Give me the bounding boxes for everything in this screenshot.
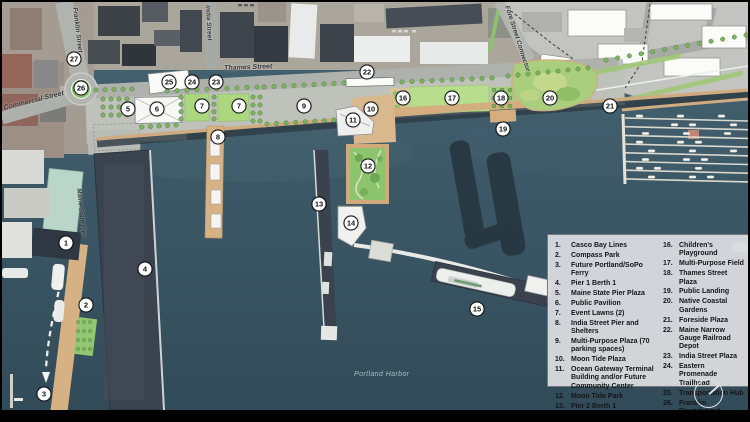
tree-icon [117,97,121,101]
legend-item: 7.Event Lawns (2) [555,310,661,318]
tree-icon [175,88,179,92]
boat-icon [648,150,655,153]
tree-icon [556,69,560,73]
casco-bay-lines-building [31,228,82,261]
legend-item-text: Moon Tide Plaza [571,356,661,364]
legend-item: 1.Casco Bay Lines [555,242,661,250]
legend-item-number: 1. [555,242,571,250]
tree-icon [332,81,336,85]
tree-icon [212,117,216,121]
legend-item-number: 16. [663,242,679,259]
boat-icon [701,158,708,161]
legend-item-text: Foreside Plaza [679,317,744,325]
tree-icon [101,113,105,117]
tree-icon [685,43,689,47]
legend-item-text: Event Lawns (2) [571,310,661,318]
tree-icon [506,74,510,78]
tree-icon [508,104,512,108]
map-marker-5: 5 [121,102,136,117]
legend-item-text: Multi-Purpose Field [679,260,744,268]
tree-icon [430,78,434,82]
legend-item: 19.Public Landing [663,288,744,296]
legend-item: 4.Pier 1 Berth 1 [555,280,661,288]
legend-item-text: India Street Plaza [679,353,744,361]
tree-icon [82,329,85,332]
legend-item-number: 2. [555,252,571,260]
map-marker-17: 17 [445,91,460,106]
map-marker-6: 6 [150,102,165,117]
legend-item: 2.Compass Park [555,252,661,260]
tree-icon [604,58,608,62]
legend-item: 3.Future Portland/SoPo Ferry [555,262,661,279]
ferry-boat [53,300,65,323]
legend-column-2: 16.Children's Playground17.Multi-Purpose… [663,242,744,381]
tree-icon [732,35,736,39]
legend-column-1: 1.Casco Bay Lines2.Compass Park3.Future … [555,242,661,381]
tree-icon [76,347,79,350]
tree-icon [480,76,484,80]
legend-item-text: Compass Park [571,252,661,260]
tree-icon [322,82,326,86]
legend-item-text: Maine State Pier Plaza [571,290,661,298]
legend-item: 6.Public Pavilion [555,300,661,308]
tree-icon [470,77,474,81]
map-marker-21: 21 [603,99,618,114]
tree-icon [82,338,85,341]
tree-icon [639,52,643,56]
legend: 1.Casco Bay Lines2.Compass Park3.Future … [547,234,748,387]
tree-icon [284,121,288,125]
tree-icon [76,329,79,332]
tree-icon [615,56,619,60]
tree-icon [508,96,512,100]
tree-icon [88,320,91,323]
tree-icon [174,123,178,127]
tree-icon [101,97,105,101]
tree-icon [627,54,631,58]
map-marker-16: 16 [396,91,411,106]
map-marker-1: 1 [59,236,74,251]
boat-icon [636,167,643,170]
tree-icon [157,124,161,128]
legend-item-text: Pier 2 Berth 1 [571,403,661,410]
legend-item: 16.Children's Playground [663,242,744,259]
map-marker-2: 2 [79,298,94,313]
tree-icon [103,88,107,92]
tree-icon [179,95,183,99]
map-marker-4: 4 [138,262,153,277]
tree-icon [674,45,678,49]
tree-icon [586,66,590,70]
waterfront-plan-map: Thames StreetCommercial StreetFranklin S… [2,2,748,410]
tree-icon [130,87,134,91]
tree-icon [179,109,183,113]
boat-icon [718,115,725,118]
tree-icon [272,84,276,88]
legend-item: 23.India Street Plaza [663,353,744,361]
legend-item-number: 9. [555,338,571,355]
boat-icon [683,158,690,161]
tree-icon [165,123,169,127]
tree-icon [212,102,216,106]
tree-icon [251,95,255,99]
tree-icon [235,86,239,90]
tree-icon [251,111,255,115]
tree-icon [212,109,216,113]
tree-icon [179,102,183,106]
map-marker-11: 11 [346,113,361,128]
legend-item-number: 23. [663,353,679,361]
boat-icon [689,176,696,179]
boat-icon [677,115,684,118]
map-marker-27: 27 [67,52,82,67]
map-marker-19: 19 [496,122,511,137]
legend-item-number: 24. [663,363,679,388]
legend-item-number: 21. [663,317,679,325]
legend-item-text: Moon Tide Park [571,393,661,401]
map-marker-12: 12 [361,159,376,174]
tree-icon [255,85,259,89]
legend-item: 18.Thames Street Plaza [663,270,744,287]
legend-item-number: 12. [555,393,571,401]
tree-icon [322,118,326,122]
tree-icon [212,95,216,99]
tree-icon [179,117,183,121]
legend-item-number: 26. [663,400,679,410]
map-marker-13: 13 [312,197,327,212]
tree-icon [576,67,580,71]
boat-icon [654,167,661,170]
tree-icon [492,104,496,108]
street-label-harbor: Portland Harbor [354,371,409,378]
map-marker-8: 8 [211,130,226,145]
tree-icon [82,320,85,323]
map-marker-7: 7 [195,99,210,114]
legend-item: 5.Maine State Pier Plaza [555,290,661,298]
tree-icon [88,329,91,332]
tree-icon [709,39,713,43]
map-marker-26: 26 [74,81,89,96]
legend-item: 17.Multi-Purpose Field [663,260,744,268]
legend-item-number: 19. [663,288,679,296]
boat-icon [677,141,684,144]
tree-icon [94,88,98,92]
tree-icon [251,103,255,107]
tree-icon [109,113,113,117]
tree-icon [490,76,494,80]
boat-icon [689,150,696,153]
legend-item-number: 11. [555,366,571,391]
map-marker-7: 7 [232,99,247,114]
tree-icon [109,105,113,109]
north-arrow-needle [708,384,719,394]
legend-item-text: Multi-Purpose Plaza (70 parking spaces) [571,338,661,355]
tree-icon [662,47,666,51]
tree-icon [112,87,116,91]
map-marker-23: 23 [209,75,224,90]
legend-item: 9.Multi-Purpose Plaza (70 parking spaces… [555,338,661,355]
map-marker-14: 14 [344,216,359,231]
ferry-boat [51,264,65,291]
legend-item-text: Public Landing [679,288,744,296]
tree-icon [101,105,105,109]
legend-item-number: 5. [555,290,571,298]
boat-icon [695,141,702,144]
legend-item-number: 13. [555,403,571,410]
boat-icon [689,124,696,127]
legend-item-number: 4. [555,280,571,288]
legend-item: 8.India Street Pier and Shelters [555,320,661,337]
legend-item-number: 7. [555,310,571,318]
map-marker-3: 3 [37,387,52,402]
tree-icon [258,103,262,107]
boat-icon [636,115,643,118]
legend-item-text: Maine Narrow Gauge Railroad Depot [679,327,744,352]
tree-icon [109,97,113,101]
tree-icon [400,80,404,84]
tree-icon [440,78,444,82]
legend-item-text: Ocean Gateway Terminal Building and/or F… [571,366,661,391]
boat-icon [707,176,714,179]
map-marker-15: 15 [470,302,485,317]
legend-item-text: Public Pavilion [571,300,661,308]
tree-icon [265,122,269,126]
tree-icon [526,72,530,76]
tree-icon [410,79,414,83]
tree-icon [117,113,121,117]
tree-icon [282,84,286,88]
boat-icon [648,176,655,179]
tree-icon [744,33,748,37]
legend-item-number: 25. [663,390,679,398]
boat-icon [730,124,737,127]
tree-icon [536,71,540,75]
boat-icon [636,141,643,144]
tree-icon [262,85,266,89]
boat-icon [730,150,737,153]
tree-icon [76,338,79,341]
tree-icon [76,320,79,323]
tree-icon [140,125,144,129]
tree-icon [225,86,229,90]
north-arrow-icon [694,379,723,408]
tree-icon [650,49,654,53]
tree-icon [302,83,306,87]
map-marker-24: 24 [185,75,200,90]
legend-item: 12.Moon Tide Park [555,393,661,401]
tree-icon [720,37,724,41]
boat-icon [642,158,649,161]
legend-item-text: Casco Bay Lines [571,242,661,250]
legend-item: 21.Foreside Plaza [663,317,744,325]
tree-icon [258,119,262,123]
map-marker-9: 9 [297,99,312,114]
tree-icon [274,121,278,125]
legend-item-number: 8. [555,320,571,337]
tree-icon [148,124,152,128]
boat-icon [642,132,649,135]
legend-item: 22.Maine Narrow Gauge Railroad Depot [663,327,744,352]
tree-icon [566,68,570,72]
screenshot-stage: Thames StreetCommercial StreetFranklin S… [0,0,750,422]
legend-item-number: 17. [663,260,679,268]
legend-item: 13.Pier 2 Berth 1 [555,403,661,410]
legend-item: 10.Moon Tide Plaza [555,356,661,364]
map-marker-22: 22 [360,65,375,80]
legend-item-text: India Street Pier and Shelters [571,320,661,337]
tree-icon [251,119,255,123]
tree-icon [546,70,550,74]
tree-icon [294,120,298,124]
legend-item-text: Native Coastal Gardens [679,298,744,315]
tree-icon [460,77,464,81]
tree-icon [508,88,512,92]
legend-item: 20.Native Coastal Gardens [663,298,744,315]
tree-icon [121,87,125,91]
tree-icon [420,79,424,83]
tree-icon [292,83,296,87]
legend-item-number: 22. [663,327,679,352]
tree-icon [312,82,316,86]
legend-item-text: Thames Street Plaza [679,270,744,287]
legend-item-number: 6. [555,300,571,308]
tree-icon [342,81,346,85]
boat-icon [671,124,678,127]
tree-icon [450,78,454,82]
tree-icon [245,85,249,89]
tree-icon [313,119,317,123]
tree-icon [88,338,91,341]
boat-icon [724,132,731,135]
legend-item-number: 20. [663,298,679,315]
tree-icon [303,120,307,124]
tree-icon [88,347,91,350]
map-marker-20: 20 [543,91,558,106]
tree-icon [332,118,336,122]
tree-icon [516,73,520,77]
legend-item: 11.Ocean Gateway Terminal Building and/o… [555,366,661,391]
tree-icon [258,95,262,99]
tree-icon [205,87,209,91]
tree-icon [258,111,262,115]
tree-icon [697,41,701,45]
legend-item-text: Pier 1 Berth 1 [571,280,661,288]
legend-item-number: 3. [555,262,571,279]
map-marker-10: 10 [364,102,379,117]
map-marker-25: 25 [162,75,177,90]
map-marker-18: 18 [494,91,509,106]
legend-item-text: Children's Playground [679,242,744,259]
legend-item-text: Future Portland/SoPo Ferry [571,262,661,279]
boat-icon [683,132,690,135]
boat-icon [695,167,702,170]
legend-item-number: 18. [663,270,679,287]
tree-icon [82,347,85,350]
legend-item-number: 10. [555,356,571,364]
